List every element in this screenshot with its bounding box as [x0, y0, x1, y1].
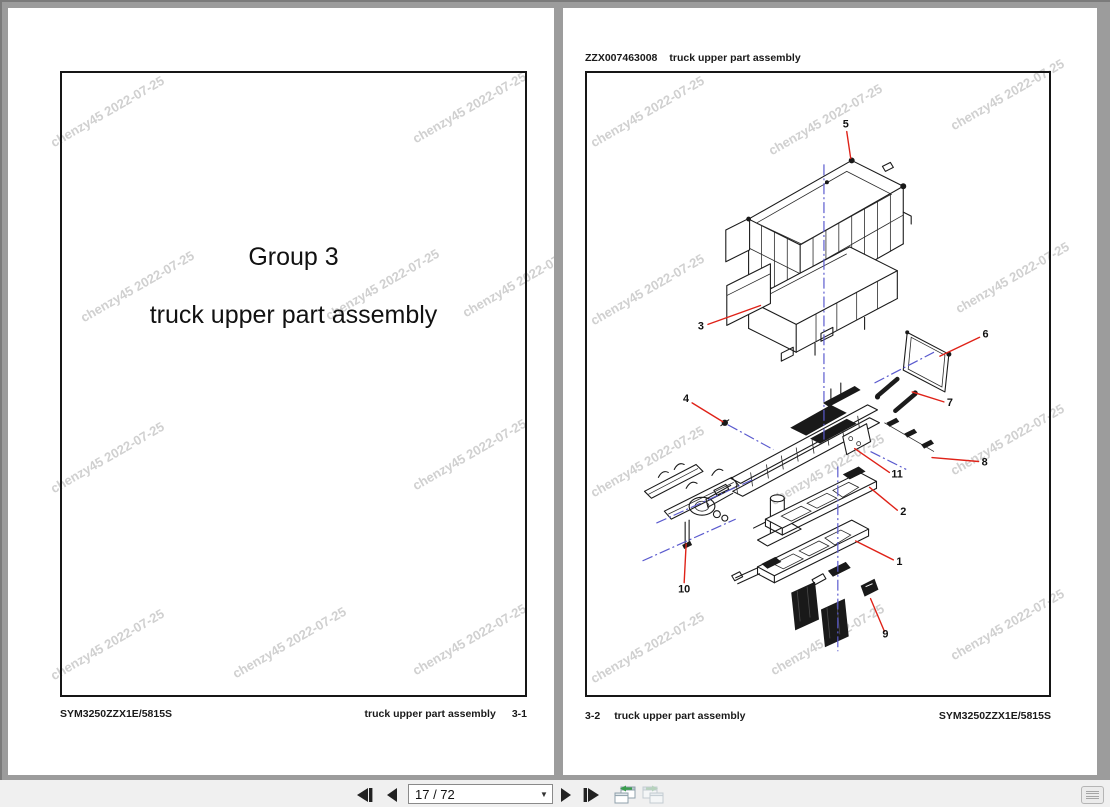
callout-6: 6 — [983, 328, 989, 340]
part-step-assembly — [645, 464, 739, 549]
footer-doc-code: SYM3250ZZX1E/5815S — [60, 708, 172, 720]
figure-code: ZZX007463008 — [585, 52, 657, 64]
callout-1: 1 — [896, 556, 902, 568]
callout-9: 9 — [882, 628, 888, 640]
part-mud-flaps — [791, 582, 849, 648]
callout-11: 11 — [891, 468, 903, 480]
part-link-rods — [875, 379, 918, 411]
group-subtitle: truck upper part assembly — [62, 301, 525, 330]
next-view-button[interactable] — [640, 784, 666, 804]
footer-doc-code: SYM3250ZZX1E/5815S — [939, 710, 1051, 722]
first-page-button[interactable] — [354, 787, 376, 803]
footer-section-title: truck upper part assembly — [614, 710, 745, 722]
diagram-frame: 5 3 6 7 4 11 8 2 1 10 9 — [585, 71, 1051, 697]
part-bracket-9 — [861, 579, 879, 597]
last-page-icon — [580, 787, 602, 803]
footer-page-number: 3-1 — [512, 708, 527, 720]
part-mid-bracket — [812, 562, 851, 585]
viewport-edge-left — [0, 0, 2, 780]
callout-10: 10 — [678, 584, 690, 596]
figure-title: truck upper part assembly — [669, 52, 800, 64]
footer-page-number: 3-2 — [585, 710, 600, 722]
page-number-input[interactable] — [409, 787, 536, 802]
first-page-icon — [354, 787, 376, 803]
callout-8: 8 — [982, 456, 988, 468]
callout-2: 2 — [900, 506, 906, 518]
callout-4: 4 — [683, 393, 689, 405]
last-page-button[interactable] — [580, 787, 602, 803]
previous-view-button[interactable] — [612, 784, 638, 804]
left-page-footer: SYM3250ZZX1E/5815S truck upper part asse… — [60, 708, 527, 720]
next-view-icon — [640, 784, 666, 804]
group-title: Group 3 — [62, 243, 525, 272]
part-bed-floor — [727, 247, 898, 361]
callout-3: 3 — [698, 320, 704, 332]
figure-header: ZZX007463008truck upper part assembly — [585, 52, 801, 64]
callout-5: 5 — [843, 119, 849, 131]
page-list-icon[interactable] — [1081, 786, 1104, 804]
page-left: Group 3 truck upper part assembly SYM325… — [8, 8, 554, 775]
chevron-down-icon[interactable]: ▼ — [536, 790, 552, 799]
callout-7: 7 — [947, 397, 953, 409]
viewport-edge-top — [0, 0, 1110, 2]
footer-section: truck upper part assembly3-1 — [349, 708, 527, 720]
exploded-diagram: 5 3 6 7 4 11 8 2 1 10 9 — [587, 73, 1049, 695]
part-brackets-8 — [884, 418, 934, 452]
title-box: Group 3 truck upper part assembly — [60, 71, 527, 697]
pdf-viewer: Group 3 truck upper part assembly SYM325… — [0, 0, 1110, 807]
footer-section: 3-2truck upper part assembly — [585, 710, 759, 722]
next-page-button[interactable] — [558, 787, 574, 803]
page-right: ZZX007463008truck upper part assembly — [563, 8, 1097, 775]
page-number-combo: ▼ — [408, 784, 553, 804]
part-side-panel — [903, 330, 951, 392]
footer-section-title: truck upper part assembly — [365, 708, 496, 720]
next-page-icon — [558, 787, 574, 803]
previous-view-icon — [612, 784, 638, 804]
previous-page-button[interactable] — [384, 787, 400, 803]
viewer-toolbar: ▼ — [0, 780, 1110, 807]
right-page-footer: 3-2truck upper part assembly SYM3250ZZX1… — [585, 710, 1051, 722]
previous-page-icon — [384, 787, 400, 803]
